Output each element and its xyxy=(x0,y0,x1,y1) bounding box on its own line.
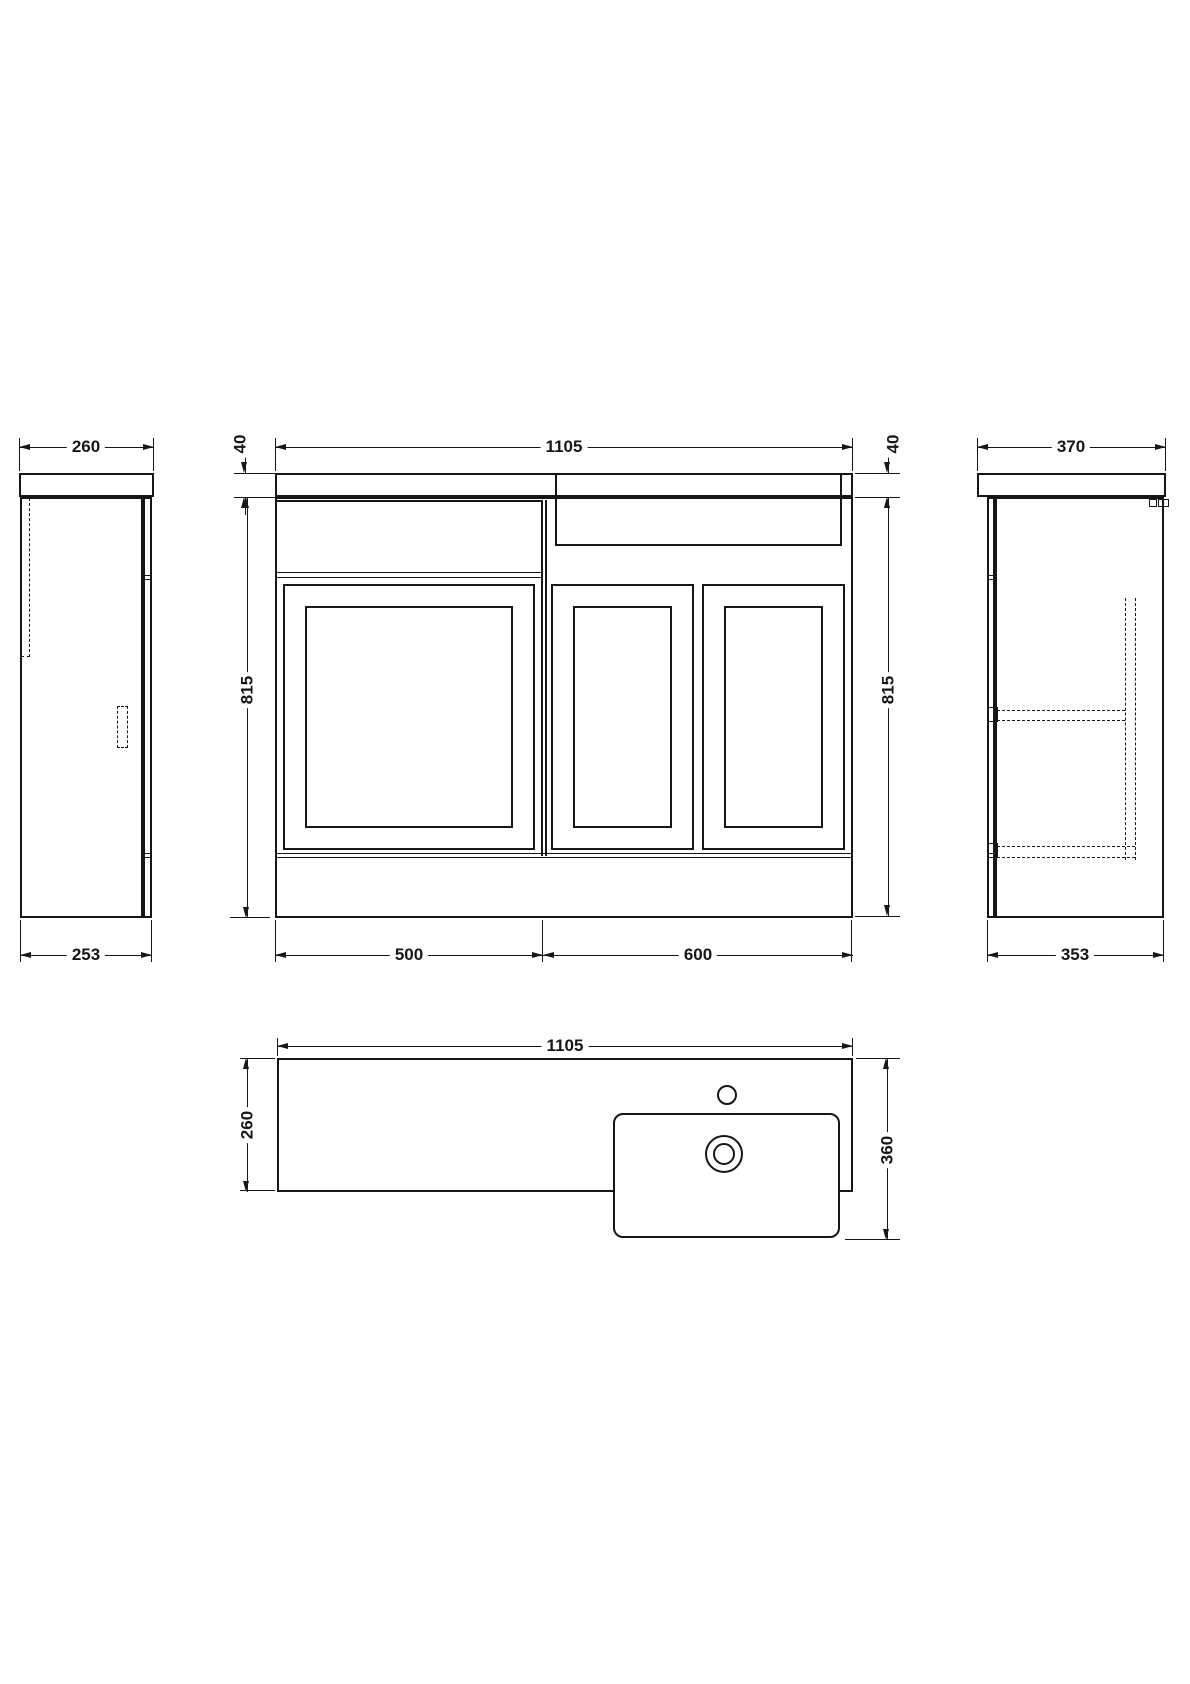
tap-hole xyxy=(717,1085,737,1105)
plan-counter-front-edge xyxy=(277,1190,615,1192)
arrowhead xyxy=(277,1043,288,1049)
dim-label-plan-depth: 260 xyxy=(239,1107,256,1143)
dim-label-plan-width: 1105 xyxy=(542,1037,589,1054)
technical-drawing-canvas: 260 253 1105 xyxy=(0,0,1190,1684)
plan-counter-back-edge xyxy=(277,1058,853,1060)
arrowhead xyxy=(842,1043,853,1049)
extension-line xyxy=(845,1239,900,1240)
dim-label-plan-basin-depth: 360 xyxy=(879,1132,896,1168)
arrowhead xyxy=(883,1229,889,1240)
plan-counter-left-edge xyxy=(277,1058,279,1192)
plan-counter-front-step xyxy=(838,1190,853,1192)
arrowhead xyxy=(243,1058,249,1069)
arrowhead xyxy=(883,1058,889,1069)
waste-inner-circle xyxy=(713,1143,735,1165)
basin-outline-plan xyxy=(613,1113,840,1238)
arrowhead xyxy=(243,1181,249,1192)
plan-view: 1105 260 360 xyxy=(0,0,1190,1684)
plan-counter-right-edge xyxy=(851,1058,853,1192)
extension-line xyxy=(856,1058,900,1059)
